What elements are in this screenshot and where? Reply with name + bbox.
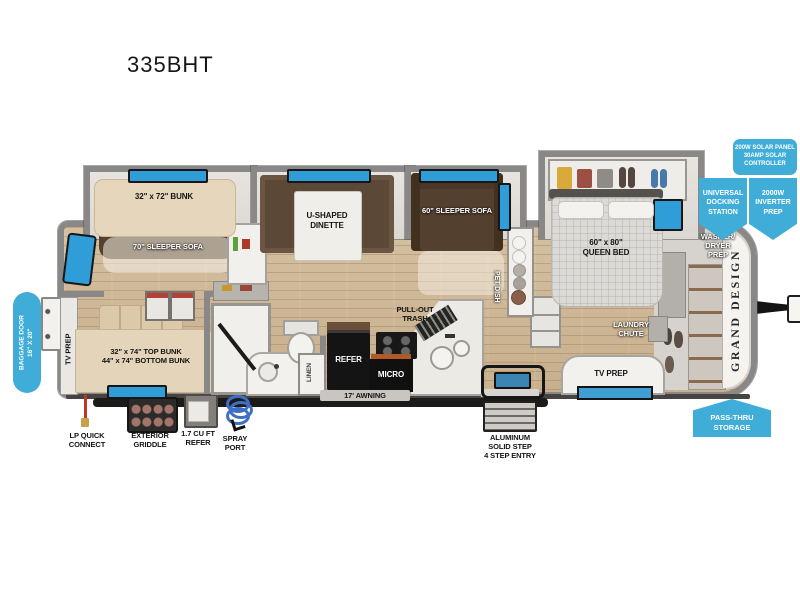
kitchen-sink-small bbox=[453, 340, 470, 357]
lp-quick-connect-icon bbox=[84, 395, 87, 419]
kitchen-sink bbox=[430, 346, 454, 370]
hitch-coupler bbox=[787, 295, 800, 323]
window bbox=[287, 169, 371, 183]
window bbox=[653, 199, 683, 231]
plate bbox=[513, 264, 526, 277]
tv-prep-bedroom-label: TV PREP bbox=[561, 369, 661, 379]
baggage-door-badge: BAGGAGE DOOR 16" X 20" bbox=[13, 292, 41, 393]
counter-item bbox=[240, 285, 252, 291]
pillow bbox=[608, 201, 654, 219]
shoes bbox=[665, 356, 674, 373]
pet-bowl bbox=[511, 290, 526, 305]
micro-label: MICRO bbox=[369, 370, 413, 380]
bedroom-tv-strip bbox=[577, 386, 653, 400]
wall bbox=[62, 291, 104, 297]
dinette-label: U-SHAPED DINETTE bbox=[296, 211, 358, 230]
solar-badge: 200W SOLAR PANEL 30AMP SOLAR CONTROLLER bbox=[733, 139, 797, 175]
linen-label: LINEN bbox=[299, 356, 321, 389]
storage-bin bbox=[170, 291, 195, 321]
plate bbox=[512, 236, 526, 250]
pull-out-trash-label: PULL-OUT TRASH bbox=[390, 305, 440, 323]
floorplan-page: 335BHT GRAND DESIGN WASHER/ DRYER PREP 3… bbox=[0, 0, 800, 600]
pass-thru-badge: PASS-THRU STORAGE bbox=[693, 399, 771, 437]
shoes-blue bbox=[660, 169, 667, 188]
pet-dish-label: PET DISH bbox=[489, 262, 503, 312]
exterior-griddle-icon bbox=[127, 397, 178, 433]
window bbox=[419, 169, 499, 183]
bunk-slide-label: 32" x 72" BUNK bbox=[104, 192, 224, 202]
pillow bbox=[558, 201, 604, 219]
small-refer-door bbox=[188, 401, 209, 422]
sofa70-label: 70" SLEEPER SOFA bbox=[108, 242, 228, 251]
spray-port-label: SPRAY PORT bbox=[209, 434, 261, 452]
storage-bin bbox=[145, 291, 170, 321]
hutch-item-green bbox=[233, 237, 238, 251]
cabinet-item-yellow bbox=[557, 167, 572, 189]
laundry-chute-label: LAUNDRY CHUTE bbox=[600, 320, 662, 338]
shoes-blue bbox=[651, 169, 658, 188]
inverter-prep-badge: 2000W INVERTER PREP bbox=[749, 178, 797, 240]
window bbox=[62, 232, 97, 286]
kitchen-faucet bbox=[445, 334, 455, 338]
tv-prep-left-label: TV PREP bbox=[59, 320, 77, 378]
window bbox=[128, 169, 208, 183]
lp-quick-connect-label: LP QUICK CONNECT bbox=[57, 431, 117, 449]
double-bunk-label: 32" x 74" TOP BUNK 44" x 74" BOTTOM BUNK bbox=[80, 347, 212, 365]
bunk-bed-32x72 bbox=[94, 179, 236, 237]
solid-step-label: ALUMINUM SOLID STEP 4 STEP ENTRY bbox=[472, 433, 548, 460]
lp-quick-connect-tip bbox=[81, 418, 89, 427]
plate bbox=[512, 250, 526, 264]
entry-rug bbox=[494, 372, 531, 389]
awning-label: 17' AWNING bbox=[320, 391, 410, 400]
page-title: 335BHT bbox=[127, 52, 247, 78]
cabinet-item-red bbox=[577, 169, 592, 188]
counter-item bbox=[222, 285, 232, 291]
hutch-item-red bbox=[242, 239, 250, 249]
shoes bbox=[674, 331, 683, 348]
bath-faucet bbox=[274, 364, 279, 369]
brand-logo: GRAND DESIGN bbox=[724, 240, 746, 380]
window bbox=[107, 385, 167, 399]
plate bbox=[513, 277, 526, 290]
refer-label: REFER bbox=[327, 355, 370, 365]
shoes-dark bbox=[619, 167, 626, 188]
entry-steps bbox=[483, 401, 537, 432]
drawer-cabinet bbox=[530, 296, 561, 348]
shoes-dark bbox=[628, 167, 635, 188]
queen-bed-label: 60" x 80" QUEEN BED bbox=[561, 238, 651, 257]
cabinet-item-gray bbox=[597, 169, 613, 188]
wall bbox=[204, 291, 210, 393]
front-wardrobe-shelves bbox=[688, 264, 726, 390]
sofa60-label: 60" SLEEPER SOFA bbox=[414, 206, 500, 215]
